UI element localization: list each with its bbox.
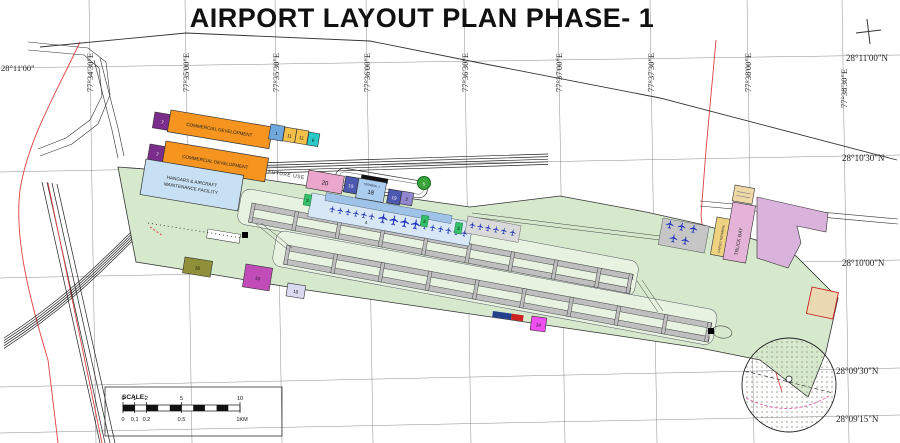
parcel-11a: 11 (283, 127, 297, 143)
future-use-label: FUTURE USE (268, 169, 306, 181)
survey-circle (742, 338, 836, 432)
reserved-plot (806, 287, 838, 319)
svg-text:0: 0 (121, 396, 124, 402)
parcel-1: 1 (269, 124, 285, 141)
parcel-14: 14 (530, 316, 547, 332)
commercial-development-1: COMMERCIAL DEVELOPMENT (167, 110, 272, 149)
latitude-label: 28°09'30"N (836, 366, 879, 376)
local-road-loop (28, 42, 124, 158)
svg-text:0: 0 (121, 417, 124, 423)
parcel-11b: 11 (295, 129, 309, 145)
svg-text:0.5: 0.5 (178, 417, 186, 423)
latitude-label: 28°11'00"N (846, 53, 889, 63)
airport-layout-plan: 77°34'30"E 77°35'00"E 77°35'30"E 77°36'0… (0, 0, 900, 443)
terminal-building-18: TERMINAL 1 18 (356, 174, 389, 203)
survey-point (786, 376, 792, 382)
page-title: AIRPORT LAYOUT PLAN PHASE- 1 (190, 3, 655, 33)
longitude-label: 77°36'00"E (362, 53, 372, 92)
svg-text:5: 5 (180, 396, 183, 402)
latitude-label: 28°09'15"N (836, 414, 879, 424)
longitude-label: 77°37'30"E (646, 53, 656, 92)
svg-text:1KM: 1KM (236, 417, 248, 423)
parcel-19b: 19 (387, 189, 402, 205)
parcel-6: 6 (307, 132, 320, 147)
longitude-label: 77°34'30"E (85, 53, 95, 92)
longitude-label: 77°38'00"E (743, 53, 753, 92)
svg-text:0.2: 0.2 (143, 417, 151, 423)
longitude-label: 77°35'00"E (181, 53, 191, 92)
parcel-2: 2 (400, 191, 414, 206)
latitude-label: 28°10'30"N (842, 153, 885, 163)
longitude-label: 77°36'30"E (460, 53, 470, 92)
latitude-label-left: 28°11'00" (1, 63, 35, 73)
parcel-number-4: 4 (365, 220, 368, 225)
scale-bar: SCALE: 0 1 2 5 10 0 0.1 0.2 0.5 1KM (105, 387, 282, 436)
threshold-marker-west (242, 232, 248, 238)
svg-text:2: 2 (145, 396, 148, 402)
svg-text:0.1: 0.1 (131, 417, 139, 423)
longitude-label: 77°37'00"E (554, 53, 564, 92)
parcel-10: 10 (286, 283, 306, 299)
longitude-label: 77°38'30"E (839, 69, 849, 108)
cargo-office-box (732, 185, 754, 204)
site-boundary-line (40, 33, 897, 160)
parcel-13: 13 (242, 264, 272, 291)
svg-text:1: 1 (133, 396, 136, 402)
parcel-number-5: 5 (423, 182, 426, 187)
latitude-label: 28°10'00"N (842, 258, 885, 268)
plan-drawing: 77°34'30"E 77°35'00"E 77°35'30"E 77°36'0… (0, 0, 900, 443)
survey-cross-icon (856, 19, 881, 44)
longitude-label: 77°35'30"E (271, 53, 281, 92)
longitude-labels: 77°34'30"E 77°35'00"E 77°35'30"E 77°36'0… (85, 53, 849, 108)
threshold-marker-east (708, 328, 714, 334)
cargo-village-area (757, 197, 828, 268)
svg-text:10: 10 (237, 396, 243, 402)
